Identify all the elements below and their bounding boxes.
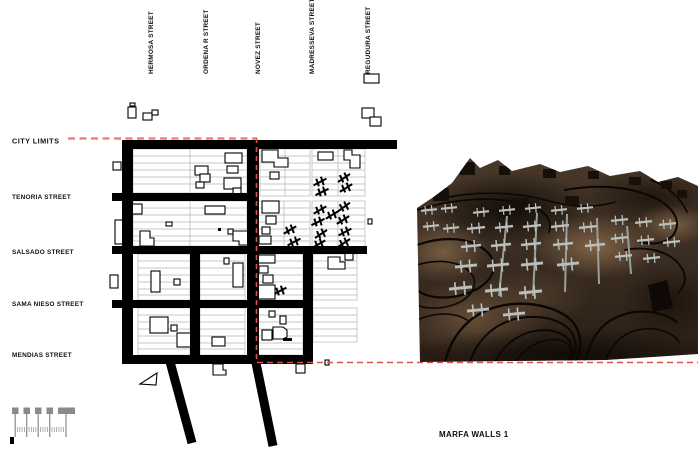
- street-label-madresseva: MADRESSEVA STREET: [309, 0, 316, 74]
- street-bar-top: [122, 140, 397, 149]
- city-limits-label: CITY LIMITS: [12, 137, 59, 146]
- terrain-render-3d: [415, 147, 698, 363]
- street-label-ordenar: ORDENA R STREET: [203, 9, 210, 74]
- terrain-surface: [415, 147, 698, 363]
- street-bar-east: [303, 246, 313, 364]
- street-bar-tenoria: [112, 193, 253, 201]
- street-bar-mid: [190, 246, 200, 364]
- render-caption: MARFA WALLS 1: [439, 430, 509, 439]
- street-bar-sama-nieso: [112, 300, 313, 308]
- street-label-sama-nieso: SAMA NIESO STREET: [12, 301, 83, 308]
- scale-bar: [10, 408, 75, 445]
- street-label-salsado: SALSADO STREET: [12, 249, 74, 256]
- page: CITY LIMITS TENORIA STREET SALSADO STREE…: [0, 0, 698, 453]
- street-label-novez: NOVEZ STREET: [255, 22, 262, 74]
- street-label-regudura: REGUDURA STREET: [365, 7, 372, 74]
- street-label-hermosa: HERMOSA STREET: [148, 11, 155, 74]
- street-label-mendias: MENDIAS STREET: [12, 352, 72, 359]
- street-diagonal-right: [255, 358, 273, 446]
- scale-bar-origin-mark: [10, 437, 14, 444]
- street-diagonal-left: [169, 358, 192, 443]
- street-label-tenoria: TENORIA STREET: [12, 194, 71, 201]
- street-bar-salsado: [112, 246, 367, 254]
- street-bar-hermosa: [122, 140, 133, 364]
